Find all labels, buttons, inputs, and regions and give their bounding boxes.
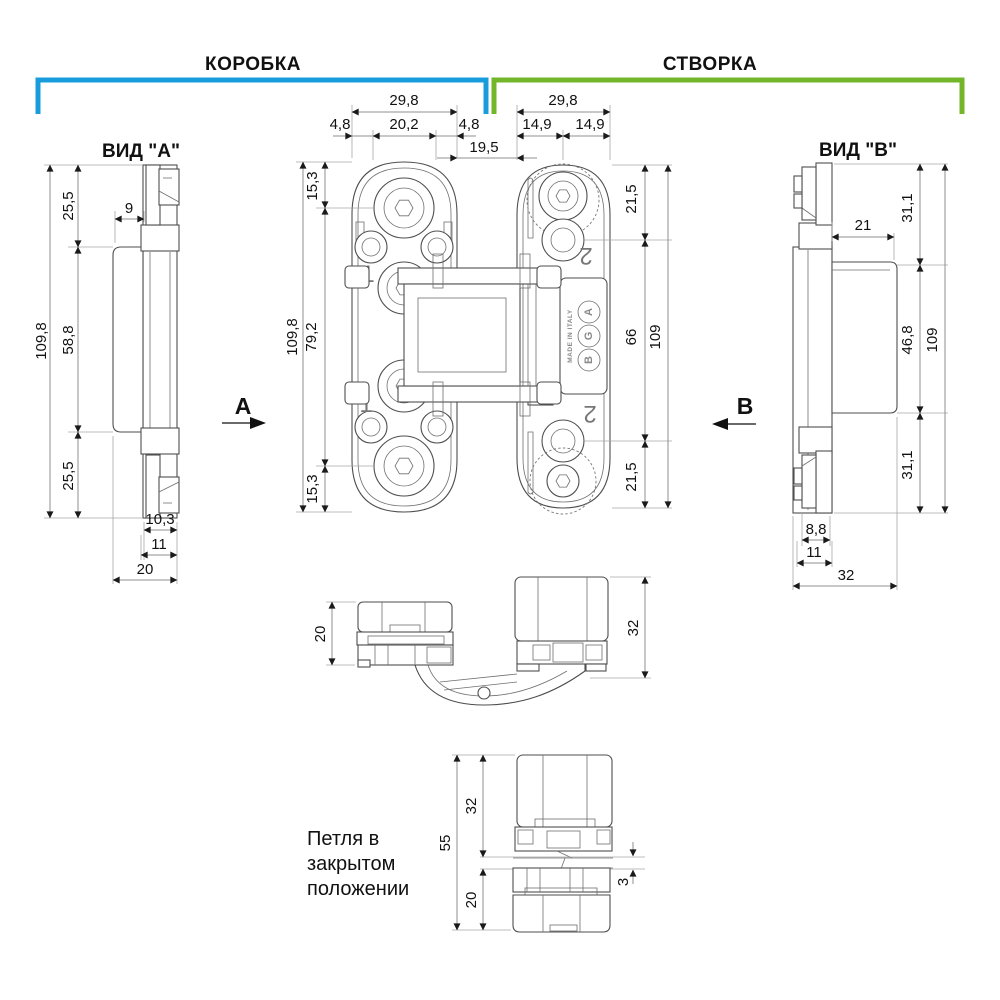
- leaf-plate-marking-bottom: 2: [583, 400, 596, 427]
- logo-letter-b: B: [583, 356, 595, 364]
- direction-a-label: A: [235, 393, 252, 419]
- drawing-svg: КОРОБКА СТВОРКА ВИД "А": [0, 0, 1000, 1000]
- dim-view-a-offset: 9: [125, 200, 133, 217]
- frame-section-label: КОРОБКА: [205, 54, 301, 75]
- front-view-leaf-plate: A G B MADE IN ITALY 2 2: [517, 164, 610, 514]
- dim-leaf-half-left: 14,9: [522, 116, 551, 133]
- dim-leaf-width: 29,8: [548, 92, 577, 109]
- dim-view-b-bottom: 31,1: [899, 450, 916, 479]
- dim-leaf-length: 109: [647, 324, 664, 349]
- dim-closed-leaf: 32: [463, 798, 480, 815]
- closed-position-view: 55 32 20 3 Петля в закрытом положении: [307, 755, 645, 932]
- dim-closed-frame: 20: [463, 892, 480, 909]
- dim-frame-lip-left: 4,8: [330, 116, 351, 133]
- dim-closed-total: 55: [437, 835, 454, 852]
- dim-frame-lip-right: 4,8: [459, 116, 480, 133]
- view-a-title: ВИД "А": [102, 141, 180, 162]
- dim-frame-hole-span: 79,2: [303, 322, 320, 351]
- dim-frame-inner-width: 20,2: [389, 116, 418, 133]
- dim-leaf-hole-top: 21,5: [623, 184, 640, 213]
- dim-frame-hole-bottom: 15,3: [304, 474, 321, 503]
- dim-leaf-hole-span: 66: [623, 329, 640, 346]
- logo-letter-a: A: [583, 308, 595, 316]
- dim-open-leaf-depth: 32: [625, 620, 642, 637]
- dim-view-a-total: 109,8: [33, 322, 50, 360]
- dim-view-b-total: 109: [924, 327, 941, 352]
- dim-view-b-top: 31,1: [899, 193, 916, 222]
- dim-view-a-cap-width: 10,3: [145, 511, 174, 528]
- dim-view-a-bottom: 25,5: [60, 461, 77, 490]
- closed-caption-line3: положении: [307, 878, 409, 900]
- dim-view-b-middle: 46,8: [899, 325, 916, 354]
- dim-gap: 19,5: [469, 139, 498, 156]
- hinge-technical-drawing: КОРОБКА СТВОРКА ВИД "А": [0, 0, 1000, 1000]
- dim-view-a-depth: 20: [137, 561, 154, 578]
- dim-frame-hole-top: 15,3: [304, 171, 321, 200]
- section-brackets: КОРОБКА СТВОРКА: [38, 54, 962, 114]
- leaf-section-label: СТВОРКА: [663, 54, 757, 75]
- dim-view-b-cap-width: 8,8: [806, 521, 827, 538]
- dim-view-b-offset: 21: [855, 217, 872, 234]
- dim-open-frame-depth: 20: [312, 626, 329, 643]
- leaf-plate-marking-top: 2: [579, 242, 592, 269]
- closed-caption-line1: Петля в: [307, 828, 379, 850]
- dim-view-a-middle: 58,8: [60, 325, 77, 354]
- direction-a-arrow-icon: [250, 417, 266, 429]
- closed-caption-line2: закрытом: [307, 853, 395, 875]
- dim-view-b-depth: 32: [838, 567, 855, 584]
- dim-frame-length: 109,8: [284, 318, 301, 356]
- dim-view-a-cap-outer: 11: [151, 536, 167, 553]
- open-position-view: 20 32: [312, 577, 651, 705]
- logo-letter-g: G: [583, 332, 595, 341]
- made-in-italy-label: MADE IN ITALY: [567, 309, 574, 363]
- dim-frame-width: 29,8: [389, 92, 418, 109]
- view-b: ВИД "В": [712, 140, 948, 590]
- dim-closed-gap: 3: [615, 878, 632, 886]
- view-a: ВИД "А" 109,8: [33, 141, 266, 584]
- dim-leaf-hole-bottom: 21,5: [623, 462, 640, 491]
- view-b-title: ВИД "В": [819, 140, 897, 161]
- dim-view-b-cap-outer: 11: [806, 544, 822, 561]
- dim-view-a-top: 25,5: [60, 191, 77, 220]
- dim-leaf-half-right: 14,9: [575, 116, 604, 133]
- direction-b-label: B: [737, 393, 754, 419]
- direction-b-arrow-icon: [712, 418, 728, 430]
